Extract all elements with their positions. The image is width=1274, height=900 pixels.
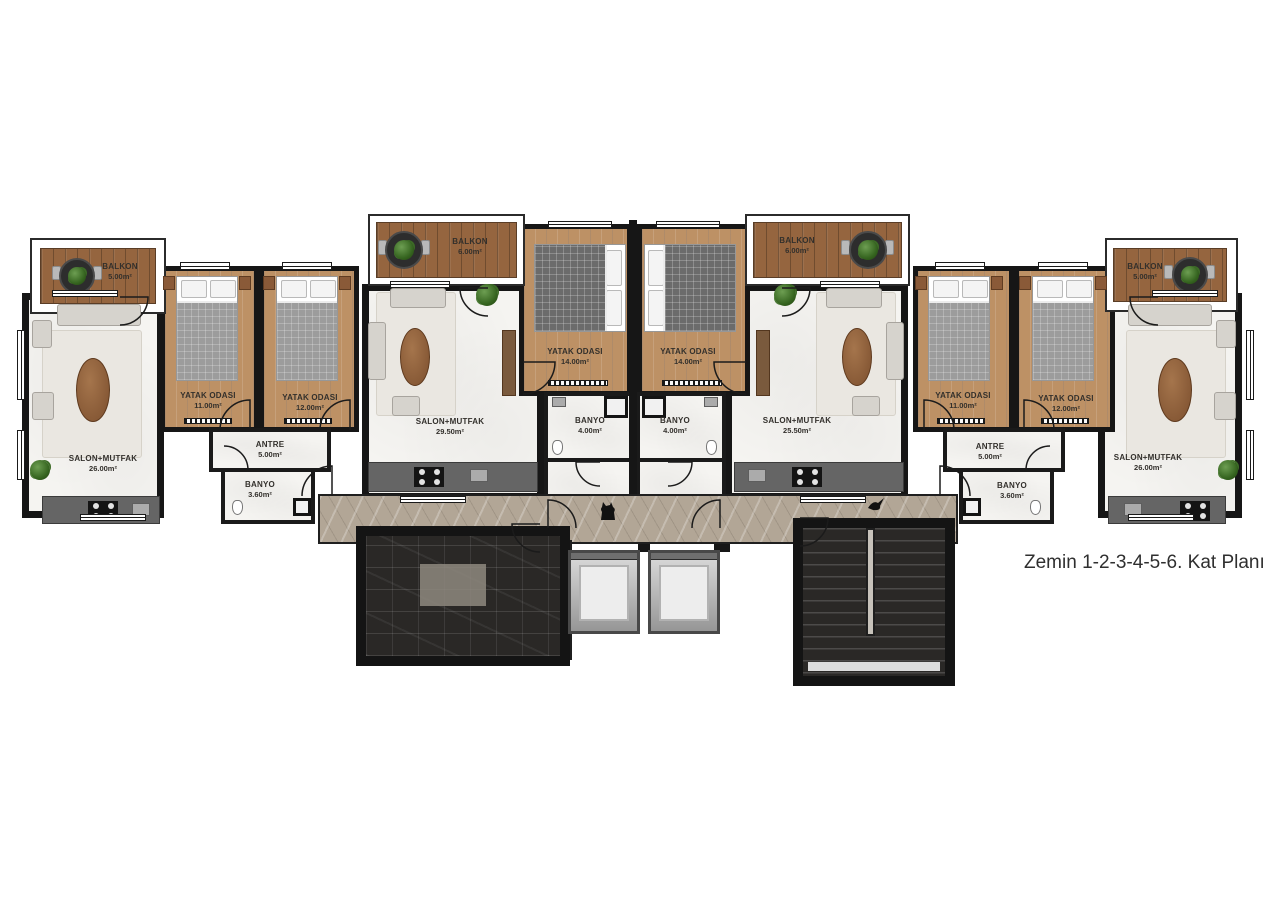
sink-icon: [470, 469, 488, 482]
radiator: [937, 418, 985, 424]
radiator: [184, 418, 232, 424]
label-banyo-far-left: BANYO3.60m²: [245, 480, 275, 500]
sink-icon: [748, 469, 766, 482]
armchair: [1214, 392, 1236, 420]
window: [1128, 514, 1194, 521]
label-yatak-center-right: YATAK ODASI14.00m²: [660, 347, 715, 367]
label-yatak2-far-left: YATAK ODASI12.00m²: [282, 393, 337, 413]
nightstand: [915, 276, 927, 290]
window: [1152, 290, 1218, 297]
window: [180, 262, 230, 270]
window: [656, 221, 720, 228]
plan-caption: Zemin 1-2-3-4-5-6. Kat Planı: [1024, 552, 1265, 574]
nightstand: [1019, 276, 1031, 290]
shower-icon: [963, 498, 981, 516]
window: [80, 514, 146, 521]
nightstand: [163, 276, 175, 290]
toilet-icon: [706, 440, 717, 455]
nightstand: [239, 276, 251, 290]
bed: [928, 276, 990, 381]
coffee-table: [1158, 358, 1192, 422]
bed: [1032, 276, 1094, 381]
nightstand: [263, 276, 275, 290]
sofa: [886, 322, 904, 380]
window: [548, 221, 612, 228]
bed: [276, 276, 338, 381]
label-banyo-far-right: BANYO3.60m²: [997, 481, 1027, 501]
coffee-table: [842, 328, 872, 386]
armchair: [32, 392, 54, 420]
label-balkon-far-left: BALKON5.00m²: [102, 262, 137, 282]
bed: [644, 244, 736, 332]
label-balkon-center-left: BALKON6.00m²: [452, 237, 487, 257]
window: [282, 262, 332, 270]
sofa: [390, 288, 446, 308]
sink-icon: [704, 397, 718, 407]
stair-rail: [866, 528, 875, 636]
armchair: [852, 396, 880, 416]
bed: [534, 244, 626, 332]
shower-icon: [293, 498, 311, 516]
label-salon-far-left: SALON+MUTFAK26.00m²: [69, 454, 137, 474]
window: [1246, 430, 1254, 480]
cabinet: [756, 330, 770, 396]
shower-icon: [604, 396, 628, 418]
floor-plan: BALKON5.00m² SALON+MUTFAK26.00m² YATAK O…: [0, 0, 1274, 900]
shower-icon: [642, 396, 666, 418]
stair-bottom-landing: [808, 662, 940, 671]
label-yatak1-far-left: YATAK ODASI11.00m²: [180, 391, 235, 411]
window: [800, 496, 866, 503]
radiator: [662, 380, 722, 386]
label-antre-far-left: ANTRE5.00m²: [256, 440, 285, 460]
sofa: [826, 288, 882, 308]
window: [390, 281, 450, 288]
label-salon-far-right: SALON+MUTFAK26.00m²: [1114, 453, 1182, 473]
window: [1038, 262, 1088, 270]
stair-landing: [420, 564, 486, 606]
sofa: [368, 322, 386, 380]
potted-plant-icon: [394, 240, 414, 260]
label-banyo-center-right: BANYO4.00m²: [660, 416, 690, 436]
potted-plant-icon: [774, 284, 796, 306]
nightstand: [339, 276, 351, 290]
bed: [176, 276, 238, 381]
label-banyo-center-left: BANYO4.00m²: [575, 416, 605, 436]
label-yatak2-far-right: YATAK ODASI12.00m²: [1038, 394, 1093, 414]
potted-plant-icon: [1181, 266, 1199, 284]
window: [17, 430, 25, 480]
potted-plant-icon: [476, 284, 498, 306]
toilet-icon: [232, 500, 243, 515]
sink-icon: [552, 397, 566, 407]
kitchen-counter: [368, 462, 538, 492]
label-balkon-far-right: BALKON5.00m²: [1127, 262, 1162, 282]
window: [1246, 330, 1254, 400]
cabinet: [502, 330, 516, 396]
window: [17, 330, 25, 400]
stove-icon: [414, 467, 444, 487]
window: [400, 496, 466, 503]
label-salon-center-right: SALON+MUTFAK25.50m²: [763, 416, 831, 436]
window: [820, 281, 880, 288]
stove-icon: [792, 467, 822, 487]
radiator: [1041, 418, 1089, 424]
nightstand: [991, 276, 1003, 290]
label-yatak1-far-right: YATAK ODASI11.00m²: [935, 391, 990, 411]
potted-plant-icon: [68, 267, 86, 285]
coffee-table: [400, 328, 430, 386]
label-antre-far-right: ANTRE5.00m²: [976, 442, 1005, 462]
radiator: [284, 418, 332, 424]
elevator-right: [648, 550, 720, 634]
potted-plant-icon: [858, 240, 878, 260]
armchair: [392, 396, 420, 416]
sofa: [1128, 304, 1212, 326]
potted-plant-icon: [1218, 460, 1238, 480]
coffee-table: [76, 358, 110, 422]
potted-plant-icon: [30, 460, 50, 480]
armchair: [32, 320, 52, 348]
wall-center-divider: [629, 220, 637, 494]
label-yatak-center-left: YATAK ODASI14.00m²: [547, 347, 602, 367]
label-salon-center-left: SALON+MUTFAK29.50m²: [416, 417, 484, 437]
nightstand: [1095, 276, 1107, 290]
elevator-left: [568, 550, 640, 634]
window: [52, 290, 118, 297]
label-balkon-center-right: BALKON6.00m²: [779, 236, 814, 256]
radiator: [548, 380, 608, 386]
sofa: [57, 304, 141, 326]
armchair: [1216, 320, 1236, 348]
toilet-icon: [1030, 500, 1041, 515]
toilet-icon: [552, 440, 563, 455]
window: [935, 262, 985, 270]
